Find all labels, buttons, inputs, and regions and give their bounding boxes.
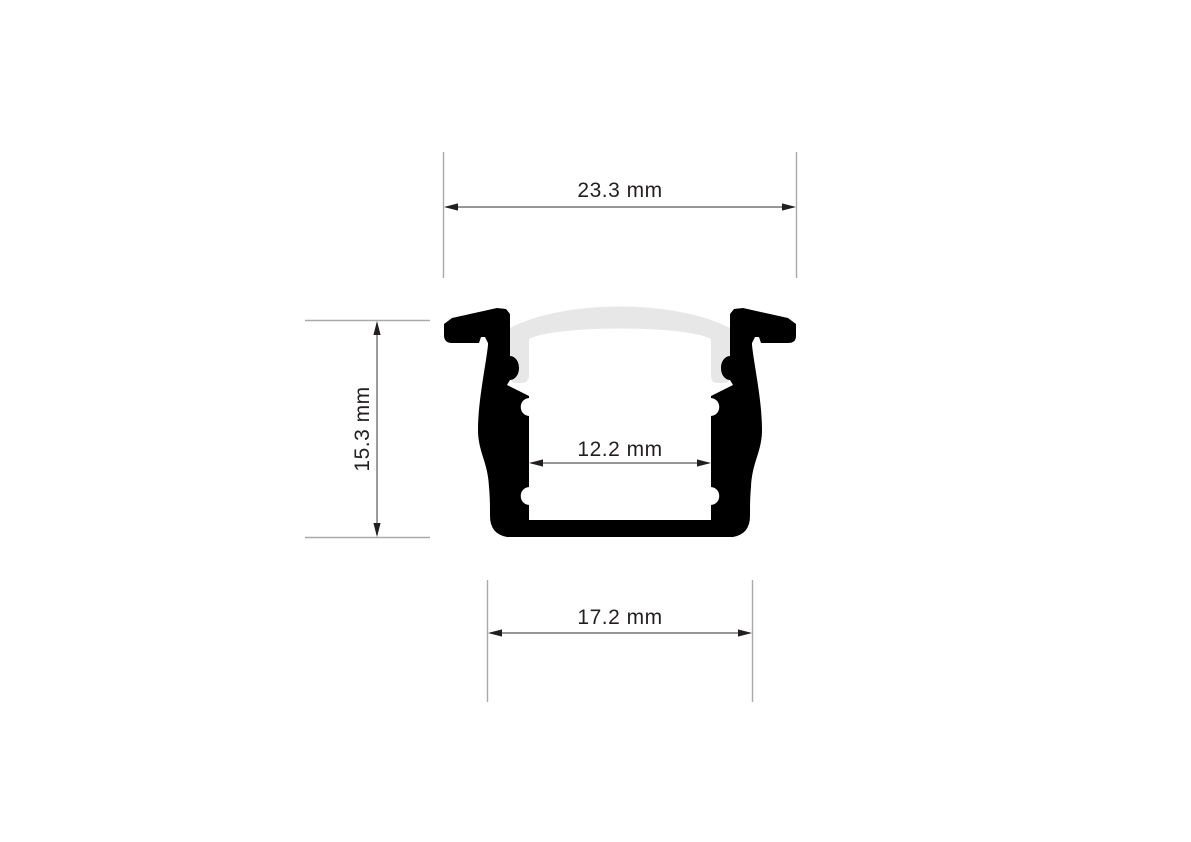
arrowhead-left	[444, 203, 458, 210]
height-label: 15.3 mm	[351, 386, 374, 471]
bottom-width-label: 17.2 mm	[577, 606, 662, 629]
arrowhead-up	[373, 321, 380, 335]
diffuser-cover	[491, 307, 749, 384]
arrowhead-left	[529, 459, 543, 466]
aluminum-profile-body	[444, 308, 796, 537]
inner-width-dimension: 12.2 mm	[529, 438, 711, 467]
profile-cross-section	[444, 307, 796, 538]
top-width-label: 23.3 mm	[577, 179, 662, 202]
height-dimension: 15.3 mm	[305, 321, 430, 538]
arrowhead-right	[782, 203, 796, 210]
technical-drawing-canvas: 23.3 mm 15.3 mm 12.2 mm 17.2 mm	[0, 0, 1191, 842]
arrowhead-left	[488, 629, 502, 636]
bottom-width-dimension: 17.2 mm	[488, 580, 753, 702]
profile-drawing: 23.3 mm 15.3 mm 12.2 mm 17.2 mm	[0, 0, 1191, 842]
arrowhead-down	[373, 523, 380, 537]
top-width-dimension: 23.3 mm	[444, 152, 797, 278]
arrowhead-right	[697, 459, 711, 466]
inner-width-label: 12.2 mm	[577, 438, 662, 461]
arrowhead-right	[738, 629, 752, 636]
